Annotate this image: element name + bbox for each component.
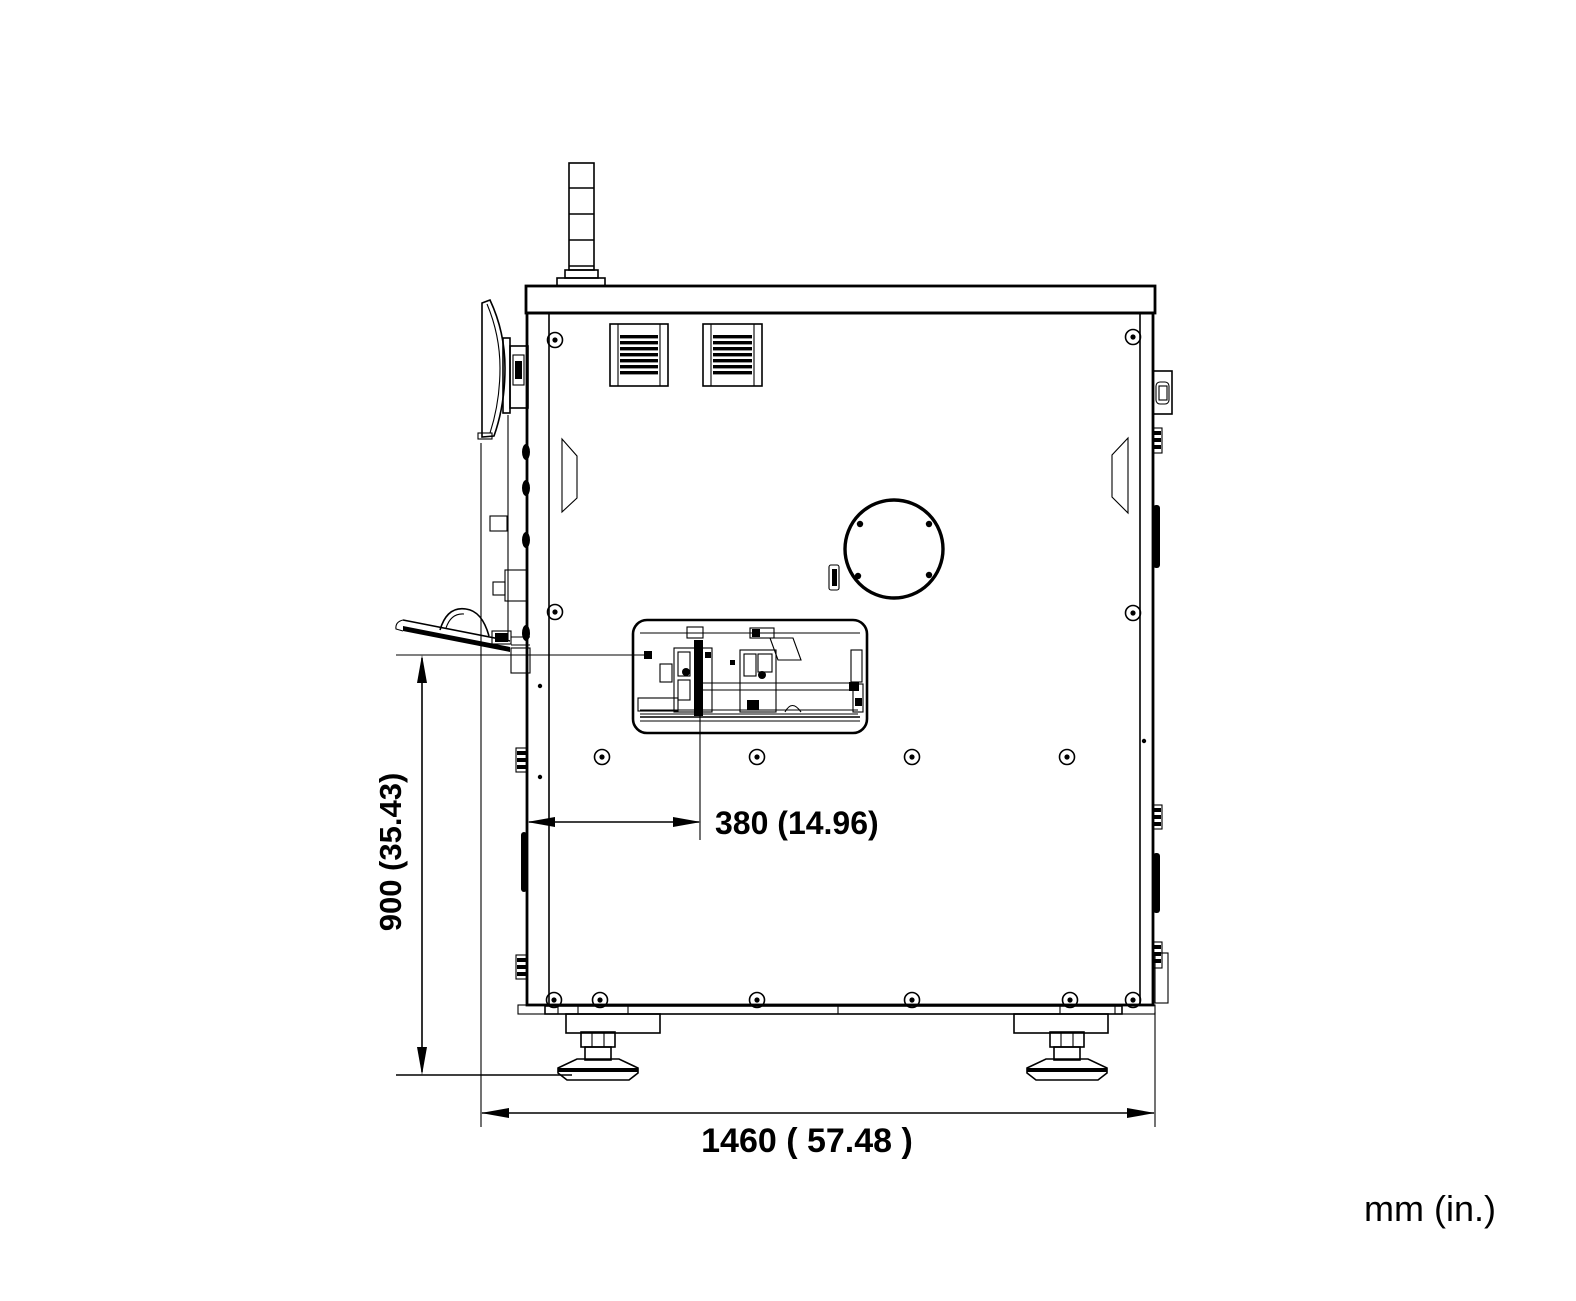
door-handle-icon [521, 832, 527, 892]
right-door-hardware [1115, 371, 1172, 1014]
dimension-height-label: 900 (35.43) [373, 773, 408, 932]
keyboard-tray [396, 609, 530, 673]
dimension-offset: 380 (14.96) [527, 705, 879, 841]
handle-recess-right-icon [1112, 438, 1128, 513]
dimension-offset-label: 380 (14.96) [715, 805, 879, 841]
dimension-height: 900 (35.43) [373, 651, 652, 1075]
leveling-foot-left-icon [558, 1032, 638, 1080]
door-handle-icon [1153, 853, 1160, 913]
sensor-slot-icon [829, 565, 839, 590]
signal-tower-icon [557, 163, 605, 286]
hinge-icon [1153, 805, 1162, 829]
mechanism [638, 627, 863, 716]
monitor-bracket [503, 338, 528, 413]
cabinet-body [508, 313, 1153, 1005]
vent-grille-right-icon [703, 324, 762, 386]
drawing-canvas: 900 (35.43) 380 (14.96) 1460 ( 57.48 ) m… [0, 0, 1576, 1301]
monitor [478, 300, 505, 439]
vent-grille-left-icon [610, 324, 668, 386]
handle-recess-left-icon [562, 439, 577, 512]
dimension-width-label: 1460 ( 57.48 ) [701, 1122, 913, 1160]
door-handle-icon [1153, 505, 1160, 568]
units-label: mm (in.) [1364, 1188, 1496, 1229]
latch-icon [1153, 371, 1172, 414]
screw-icons [538, 330, 1146, 1008]
leveling-foot-right-icon [1027, 1032, 1107, 1080]
hinge-icon [516, 748, 527, 772]
base-frame [545, 1006, 1122, 1033]
left-door-hardware [490, 444, 558, 1014]
cabinet-roof [526, 286, 1155, 313]
fan-opening-icon [845, 500, 943, 598]
hinge-icon [516, 955, 527, 979]
